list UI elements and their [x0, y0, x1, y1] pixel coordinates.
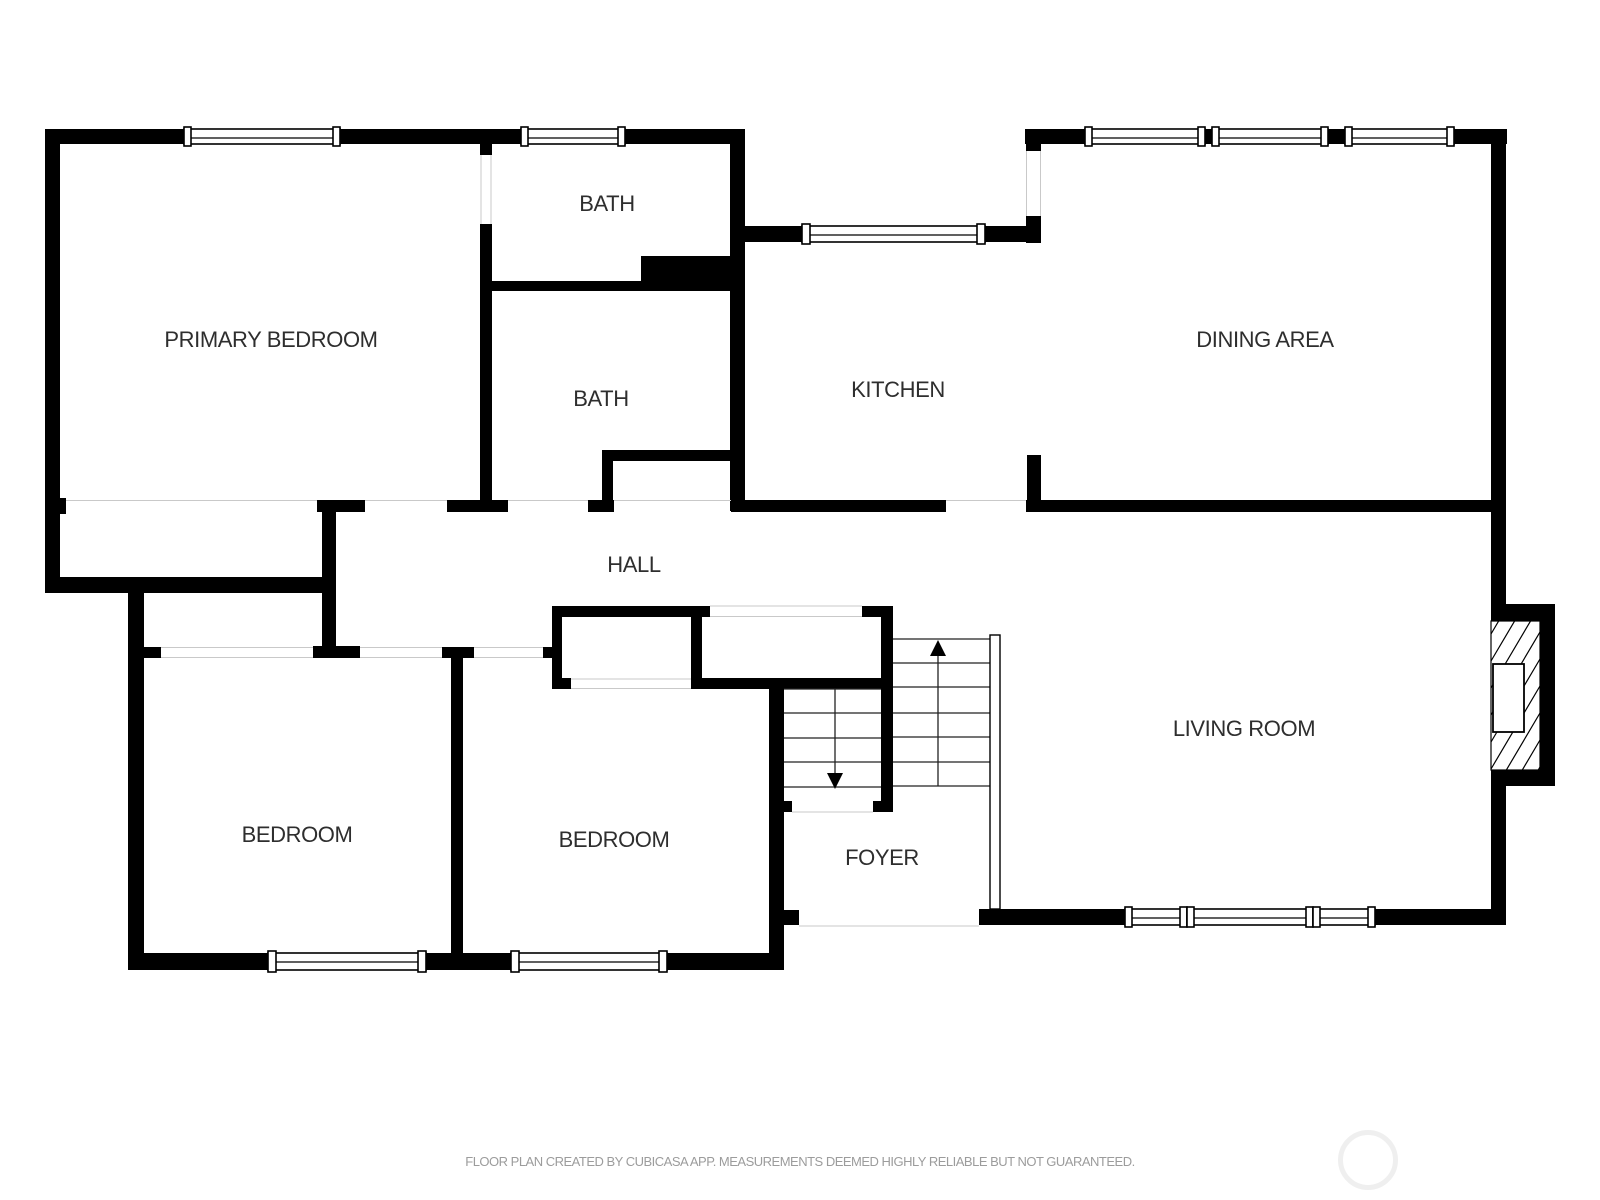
svg-text:PRIMARY BEDROOM: PRIMARY BEDROOM: [164, 327, 377, 352]
svg-text:KITCHEN: KITCHEN: [851, 377, 945, 402]
svg-text:HALL: HALL: [607, 552, 661, 577]
svg-text:BEDROOM: BEDROOM: [242, 822, 353, 847]
svg-text:LIVING ROOM: LIVING ROOM: [1173, 716, 1315, 741]
svg-text:BEDROOM: BEDROOM: [559, 827, 670, 852]
svg-text:DINING AREA: DINING AREA: [1196, 327, 1334, 352]
svg-text:FOYER: FOYER: [845, 845, 919, 870]
svg-text:BATH: BATH: [573, 386, 628, 411]
svg-text:FLOOR PLAN CREATED BY CUBICASA: FLOOR PLAN CREATED BY CUBICASA APP. MEAS…: [465, 1154, 1134, 1169]
svg-text:BATH: BATH: [579, 191, 634, 216]
